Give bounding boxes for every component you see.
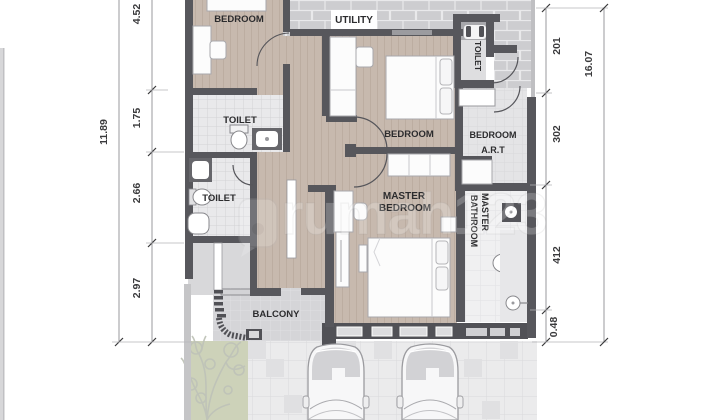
svg-text:A.R.T: A.R.T xyxy=(481,145,505,155)
svg-text:11.89: 11.89 xyxy=(98,119,110,145)
svg-text:2.66: 2.66 xyxy=(131,183,143,204)
svg-text:rumah123: rumah123 xyxy=(281,182,547,247)
svg-text:16.07: 16.07 xyxy=(583,51,595,77)
svg-text:BALCONY: BALCONY xyxy=(253,309,301,320)
svg-text:BEDROOM: BEDROOM xyxy=(470,130,517,140)
svg-text:TOILET: TOILET xyxy=(473,41,483,72)
svg-text:302: 302 xyxy=(551,125,563,143)
svg-text:TOILET: TOILET xyxy=(223,115,257,126)
svg-text:0.48: 0.48 xyxy=(548,317,560,338)
svg-text:1.75: 1.75 xyxy=(131,108,143,129)
svg-text:4.52: 4.52 xyxy=(131,4,143,25)
svg-text:412: 412 xyxy=(551,246,563,264)
svg-text:TOILET: TOILET xyxy=(202,193,236,204)
svg-text:UTILITY: UTILITY xyxy=(335,15,373,26)
svg-text:BEDROOM: BEDROOM xyxy=(214,14,264,25)
svg-text:201: 201 xyxy=(551,37,563,55)
svg-text:BEDROOM: BEDROOM xyxy=(384,129,434,140)
svg-text:2.97: 2.97 xyxy=(131,278,143,299)
